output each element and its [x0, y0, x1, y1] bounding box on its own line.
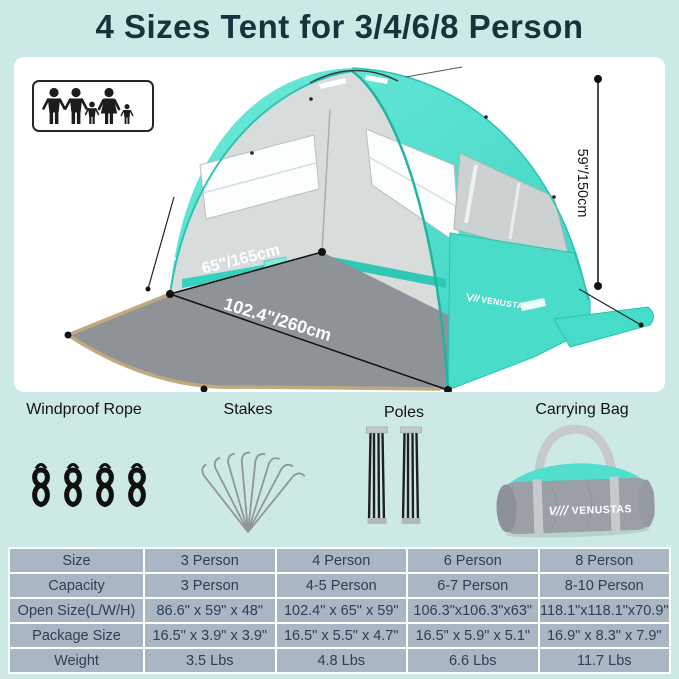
spec-table: Size 3 Person 4 Person 6 Person 8 Person…: [8, 547, 671, 674]
stakes-fan-icon: [192, 446, 310, 536]
table-cell: 3.5 Lbs: [145, 649, 275, 672]
bag-label: Carrying Bag: [518, 401, 646, 419]
tent-height-label: 59"/150cm: [574, 149, 590, 218]
table-cell: 6.6 Lbs: [408, 649, 538, 672]
table-cell: 11.7 Lbs: [540, 649, 670, 672]
folded-poles-icon: [366, 424, 426, 532]
table-cell: 118.1"x118.1"x70.9": [540, 599, 670, 622]
rope-label: Windproof Rope: [22, 401, 146, 419]
table-cell: 102.4" x 65" x 59": [277, 599, 407, 622]
spec-row-label: Capacity: [10, 574, 143, 597]
table-cell: 16.5" x 5.9" x 5.1": [408, 624, 538, 647]
table-cell: 3 Person: [145, 574, 275, 597]
tent-side-panel: [448, 233, 590, 390]
product-infographic: 4 Sizes Tent for 3/4/6/8 Person: [0, 0, 679, 679]
rope-coil-icon: [26, 458, 156, 514]
table-cell: 6-7 Person: [408, 574, 538, 597]
spec-row-label: Weight: [10, 649, 143, 672]
table-cell: 4-5 Person: [277, 574, 407, 597]
table-cell: 16.5" x 3.9" x 3.9": [145, 624, 275, 647]
poles-label: Poles: [352, 404, 456, 422]
tent-diagram: VENUSTAS 65"/16: [14, 57, 665, 392]
page-title: 4 Sizes Tent for 3/4/6/8 Person: [0, 8, 679, 46]
table-cell: 6 Person: [408, 549, 538, 572]
table-cell: 4.8 Lbs: [277, 649, 407, 672]
spec-row-label: Size: [10, 549, 143, 572]
bag-brand-text: VENUSTAS: [571, 503, 632, 517]
table-cell: 4 Person: [277, 549, 407, 572]
table-cell: 16.9" x 8.3" x 7.9": [540, 624, 670, 647]
tent-illustration-panel: VENUSTAS 65"/16: [14, 57, 665, 392]
carrying-bag-icon: V VENUSTAS: [492, 422, 660, 538]
table-cell: 106.3"x106.3"x63": [408, 599, 538, 622]
table-cell: 86.6" x 59" x 48": [145, 599, 275, 622]
stakes-label: Stakes: [196, 401, 300, 419]
table-cell: 8 Person: [540, 549, 670, 572]
spec-row-label: Package Size: [10, 624, 143, 647]
table-cell: 8-10 Person: [540, 574, 670, 597]
table-cell: 16.5" x 5.5" x 4.7": [277, 624, 407, 647]
table-cell: 3 Person: [145, 549, 275, 572]
spec-row-label: Open Size(L/W/H): [10, 599, 143, 622]
